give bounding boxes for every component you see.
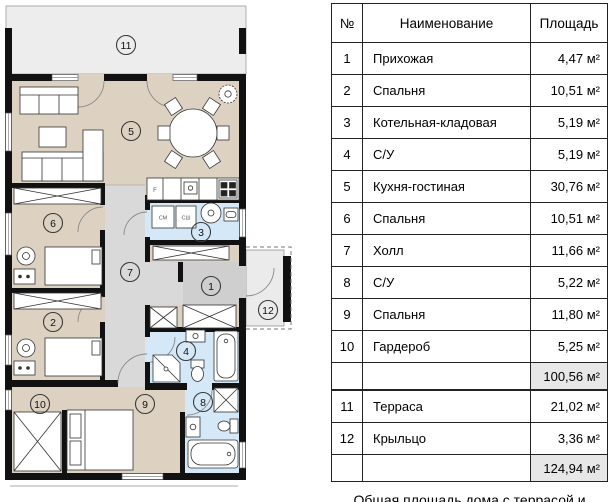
sink-icon [186,417,200,437]
table-row: 4С/У5,19 м² [332,139,608,171]
toilet-icon [191,360,204,382]
table-row: 7Холл11,66 м² [332,235,608,267]
window [240,209,246,237]
fridge-label: F [153,188,157,194]
sofa [20,87,78,114]
svg-text:2: 2 [50,317,56,329]
svg-text:10: 10 [34,399,46,411]
area-table: № Наименование Площадь 1Прихожая4,47 м² … [331,3,608,482]
table-row: 2Спальня10,51 м² [332,75,608,107]
stove-icon [219,180,237,198]
svg-text:4: 4 [183,346,189,358]
plant-icon [219,85,237,103]
empty-cell [332,363,363,391]
row-area: 11,80 м² [531,299,608,331]
bed [45,338,102,376]
row-num: 1 [332,43,363,75]
shower-icon [153,355,180,382]
row-num: 3 [332,107,363,139]
row-name: Терраса [363,390,531,423]
table-header-row: № Наименование Площадь [332,4,608,43]
row-name: Кухня-гостиная [363,171,531,203]
row-num: 11 [332,390,363,423]
page: 1 2 3 4 5 6 7 8 9 10 11 12 F СМ СШ № Наи… [0,0,609,502]
water-heater-icon [201,203,221,223]
kitchen-counter [147,178,239,200]
row-area: 5,19 м² [531,107,608,139]
row-num: 4 [332,139,363,171]
row-area: 10,51 м² [531,203,608,235]
sink-icon [184,182,197,194]
svg-text:8: 8 [200,397,206,409]
closet [14,293,101,309]
washer-label: СМ [159,216,168,222]
svg-text:5: 5 [128,126,134,138]
window [6,113,12,151]
table-row: 1Прихожая4,47 м² [332,43,608,75]
row-area: 5,22 м² [531,267,608,299]
bathtub-icon [188,440,238,468]
window [173,75,197,81]
window [122,474,163,480]
row-name: Спальня [363,299,531,331]
total-caption-text: Общая площадь дома с террасой и крыльцом… [344,491,596,502]
row-num: 6 [332,203,363,235]
row-area: 5,25 м² [531,331,608,363]
row-name: Гардероб [363,331,531,363]
svg-text:1: 1 [208,281,214,293]
empty-cell [332,455,363,482]
row-area: 10,51 м² [531,75,608,107]
header-name: Наименование [363,4,531,43]
coffee-table [39,127,66,147]
closet [153,246,229,260]
window [6,390,12,410]
closet [150,307,177,328]
double-bed [67,410,133,470]
sink-icon [186,330,205,342]
header-num: № [332,4,363,43]
window [6,213,12,255]
window [6,335,12,365]
row-num: 9 [332,299,363,331]
svg-text:9: 9 [142,399,148,411]
table-row: 12Крыльцо3,36 м² [332,423,608,455]
dryer-label: СШ [181,216,190,222]
header-area: Площадь [531,4,608,43]
row-area: 4,47 м² [531,43,608,75]
total-caption: Общая площадь дома с террасой и крыльцом… [331,491,608,502]
shower-icon [214,388,238,412]
row-name: Холл [363,235,531,267]
row-area: 5,19 м² [531,139,608,171]
table-row: 5Кухня-гостиная30,76 м² [332,171,608,203]
row-num: 5 [332,171,363,203]
dresser [14,361,35,375]
window [240,442,246,468]
dresser [14,269,35,284]
bed [45,247,102,285]
row-num: 7 [332,235,363,267]
row-num: 8 [332,267,363,299]
row-area: 30,76 м² [531,171,608,203]
plant-pot [17,339,35,357]
row-num: 2 [332,75,363,107]
row-name: Прихожая [363,43,531,75]
total-row: 124,94 м² [332,455,608,482]
dining-table [169,109,217,157]
table-row: 9Спальня11,80 м² [332,299,608,331]
subtotal-row: 100,56 м² [332,363,608,391]
row-num: 10 [332,331,363,363]
row-name: С/У [363,139,531,171]
total-area: 124,94 м² [531,455,608,482]
row-area: 3,36 м² [531,423,608,455]
closet [14,188,101,204]
wardrobe [14,412,61,471]
window [52,75,78,81]
plant-pot [17,247,35,265]
row-name: Крыльцо [363,423,531,455]
subtotal-area: 100,56 м² [531,363,608,391]
bathtub-icon [214,331,238,381]
svg-text:7: 7 [127,267,133,279]
row-area: 11,66 м² [531,235,608,267]
row-name: С/У [363,267,531,299]
closet [183,305,236,328]
empty-cell [363,363,531,391]
row-name: Спальня [363,203,531,235]
row-area: 21,02 м² [531,390,608,423]
table-row: 10Гардероб5,25 м² [332,331,608,363]
table-row: 6Спальня10,51 м² [332,203,608,235]
svg-text:3: 3 [198,227,204,239]
row-name: Спальня [363,75,531,107]
table-row: 3Котельная-кладовая5,19 м² [332,107,608,139]
table-row: 8С/У5,22 м² [332,267,608,299]
table-row: 11Терраса21,02 м² [332,390,608,423]
svg-text:6: 6 [50,218,56,230]
row-name: Котельная-кладовая [363,107,531,139]
svg-text:12: 12 [262,305,274,317]
boiler-cabinet [224,208,238,221]
floor-plan: 1 2 3 4 5 6 7 8 9 10 11 12 F СМ СШ [0,0,330,502]
row-num: 12 [332,423,363,455]
hall-floor [105,185,145,387]
svg-text:11: 11 [121,40,132,52]
empty-cell [363,455,531,482]
